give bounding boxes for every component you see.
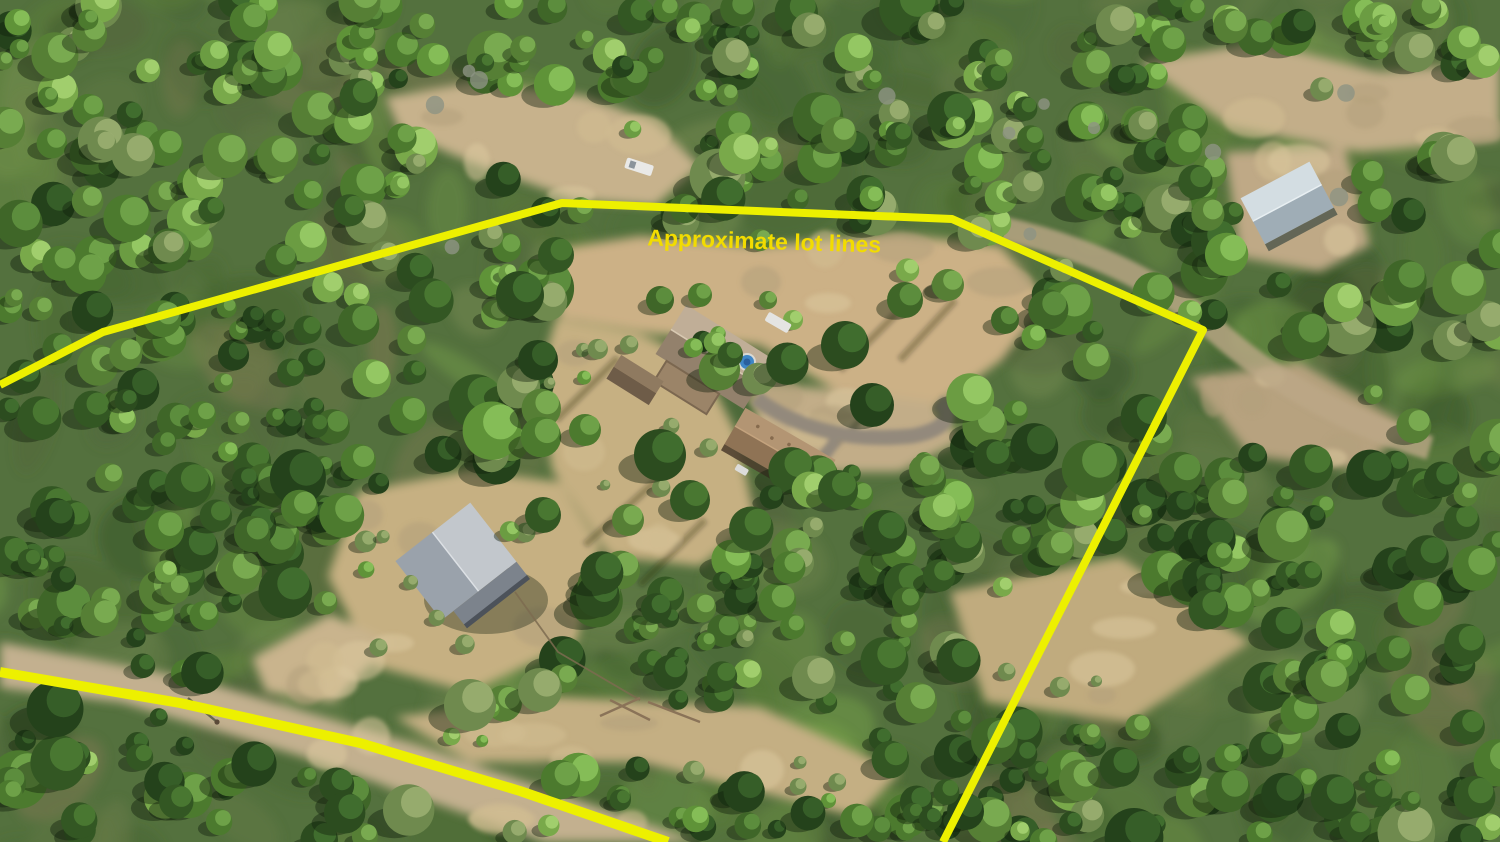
lot-lines-overlay: Approximate lot lines bbox=[0, 0, 1500, 842]
aerial-property-photo: Approximate lot lines bbox=[0, 0, 1500, 842]
lot-lines-label: Approximate lot lines bbox=[647, 224, 882, 257]
lot-boundary-line bbox=[0, 203, 1203, 842]
lot-boundary-road-line bbox=[0, 672, 668, 842]
